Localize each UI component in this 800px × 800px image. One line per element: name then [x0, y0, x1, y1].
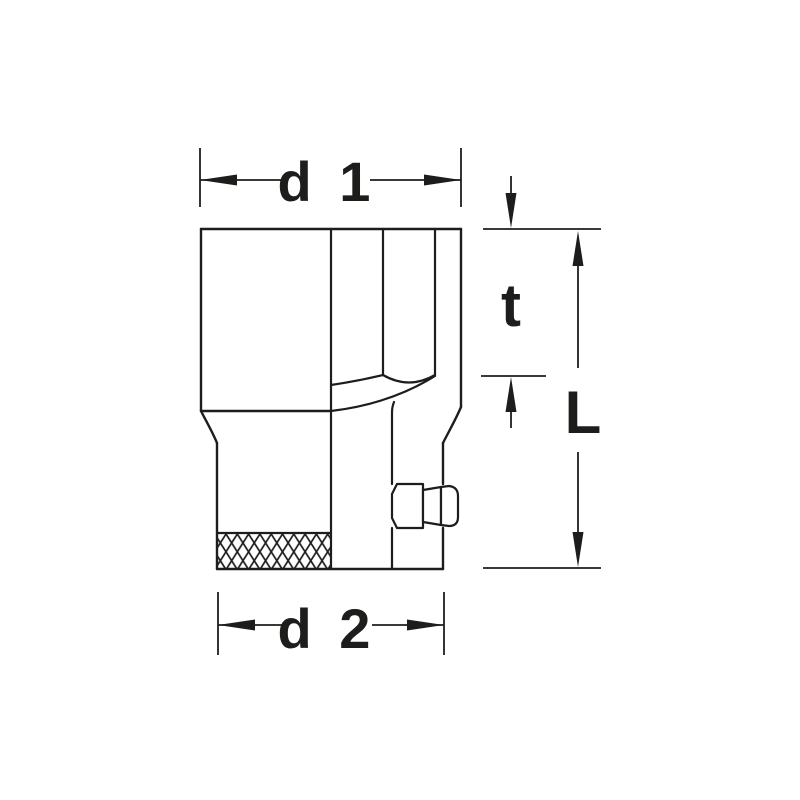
- d1-arrow-left-icon: [200, 175, 237, 186]
- L-arrow-down-icon: [573, 532, 584, 567]
- dimension-L-label: L: [565, 379, 602, 446]
- dimension-t-label: t: [501, 272, 521, 339]
- knurl-band: [217, 533, 331, 568]
- socket-body: [201, 229, 461, 569]
- t-arrow-up-icon: [506, 377, 517, 412]
- L-arrow-up-icon: [573, 231, 584, 266]
- dimension-d2-label: d 2: [278, 597, 377, 660]
- dimension-d2: d 2: [218, 592, 444, 660]
- d2-arrow-left-icon: [218, 620, 255, 631]
- detent-button-base: [392, 484, 423, 528]
- facet-line-lower: [392, 402, 394, 569]
- dimension-d1: d 1: [200, 148, 461, 213]
- body-right-neck-curve: [443, 407, 461, 443]
- body-left-neck-curve: [201, 411, 217, 443]
- drawing-canvas: d 1 t L d 2: [0, 0, 800, 800]
- dimension-d1-label: d 1: [278, 150, 377, 213]
- d2-arrow-right-icon: [407, 620, 444, 631]
- t-arrow-down-icon: [506, 193, 517, 228]
- detent-button: [392, 484, 458, 528]
- d1-arrow-right-icon: [424, 175, 461, 186]
- socket-technical-drawing: d 1 t L d 2: [0, 0, 800, 800]
- cavity-curve-left: [331, 375, 383, 385]
- detent-button-cap: [441, 486, 458, 526]
- detent-button-neck: [423, 487, 441, 525]
